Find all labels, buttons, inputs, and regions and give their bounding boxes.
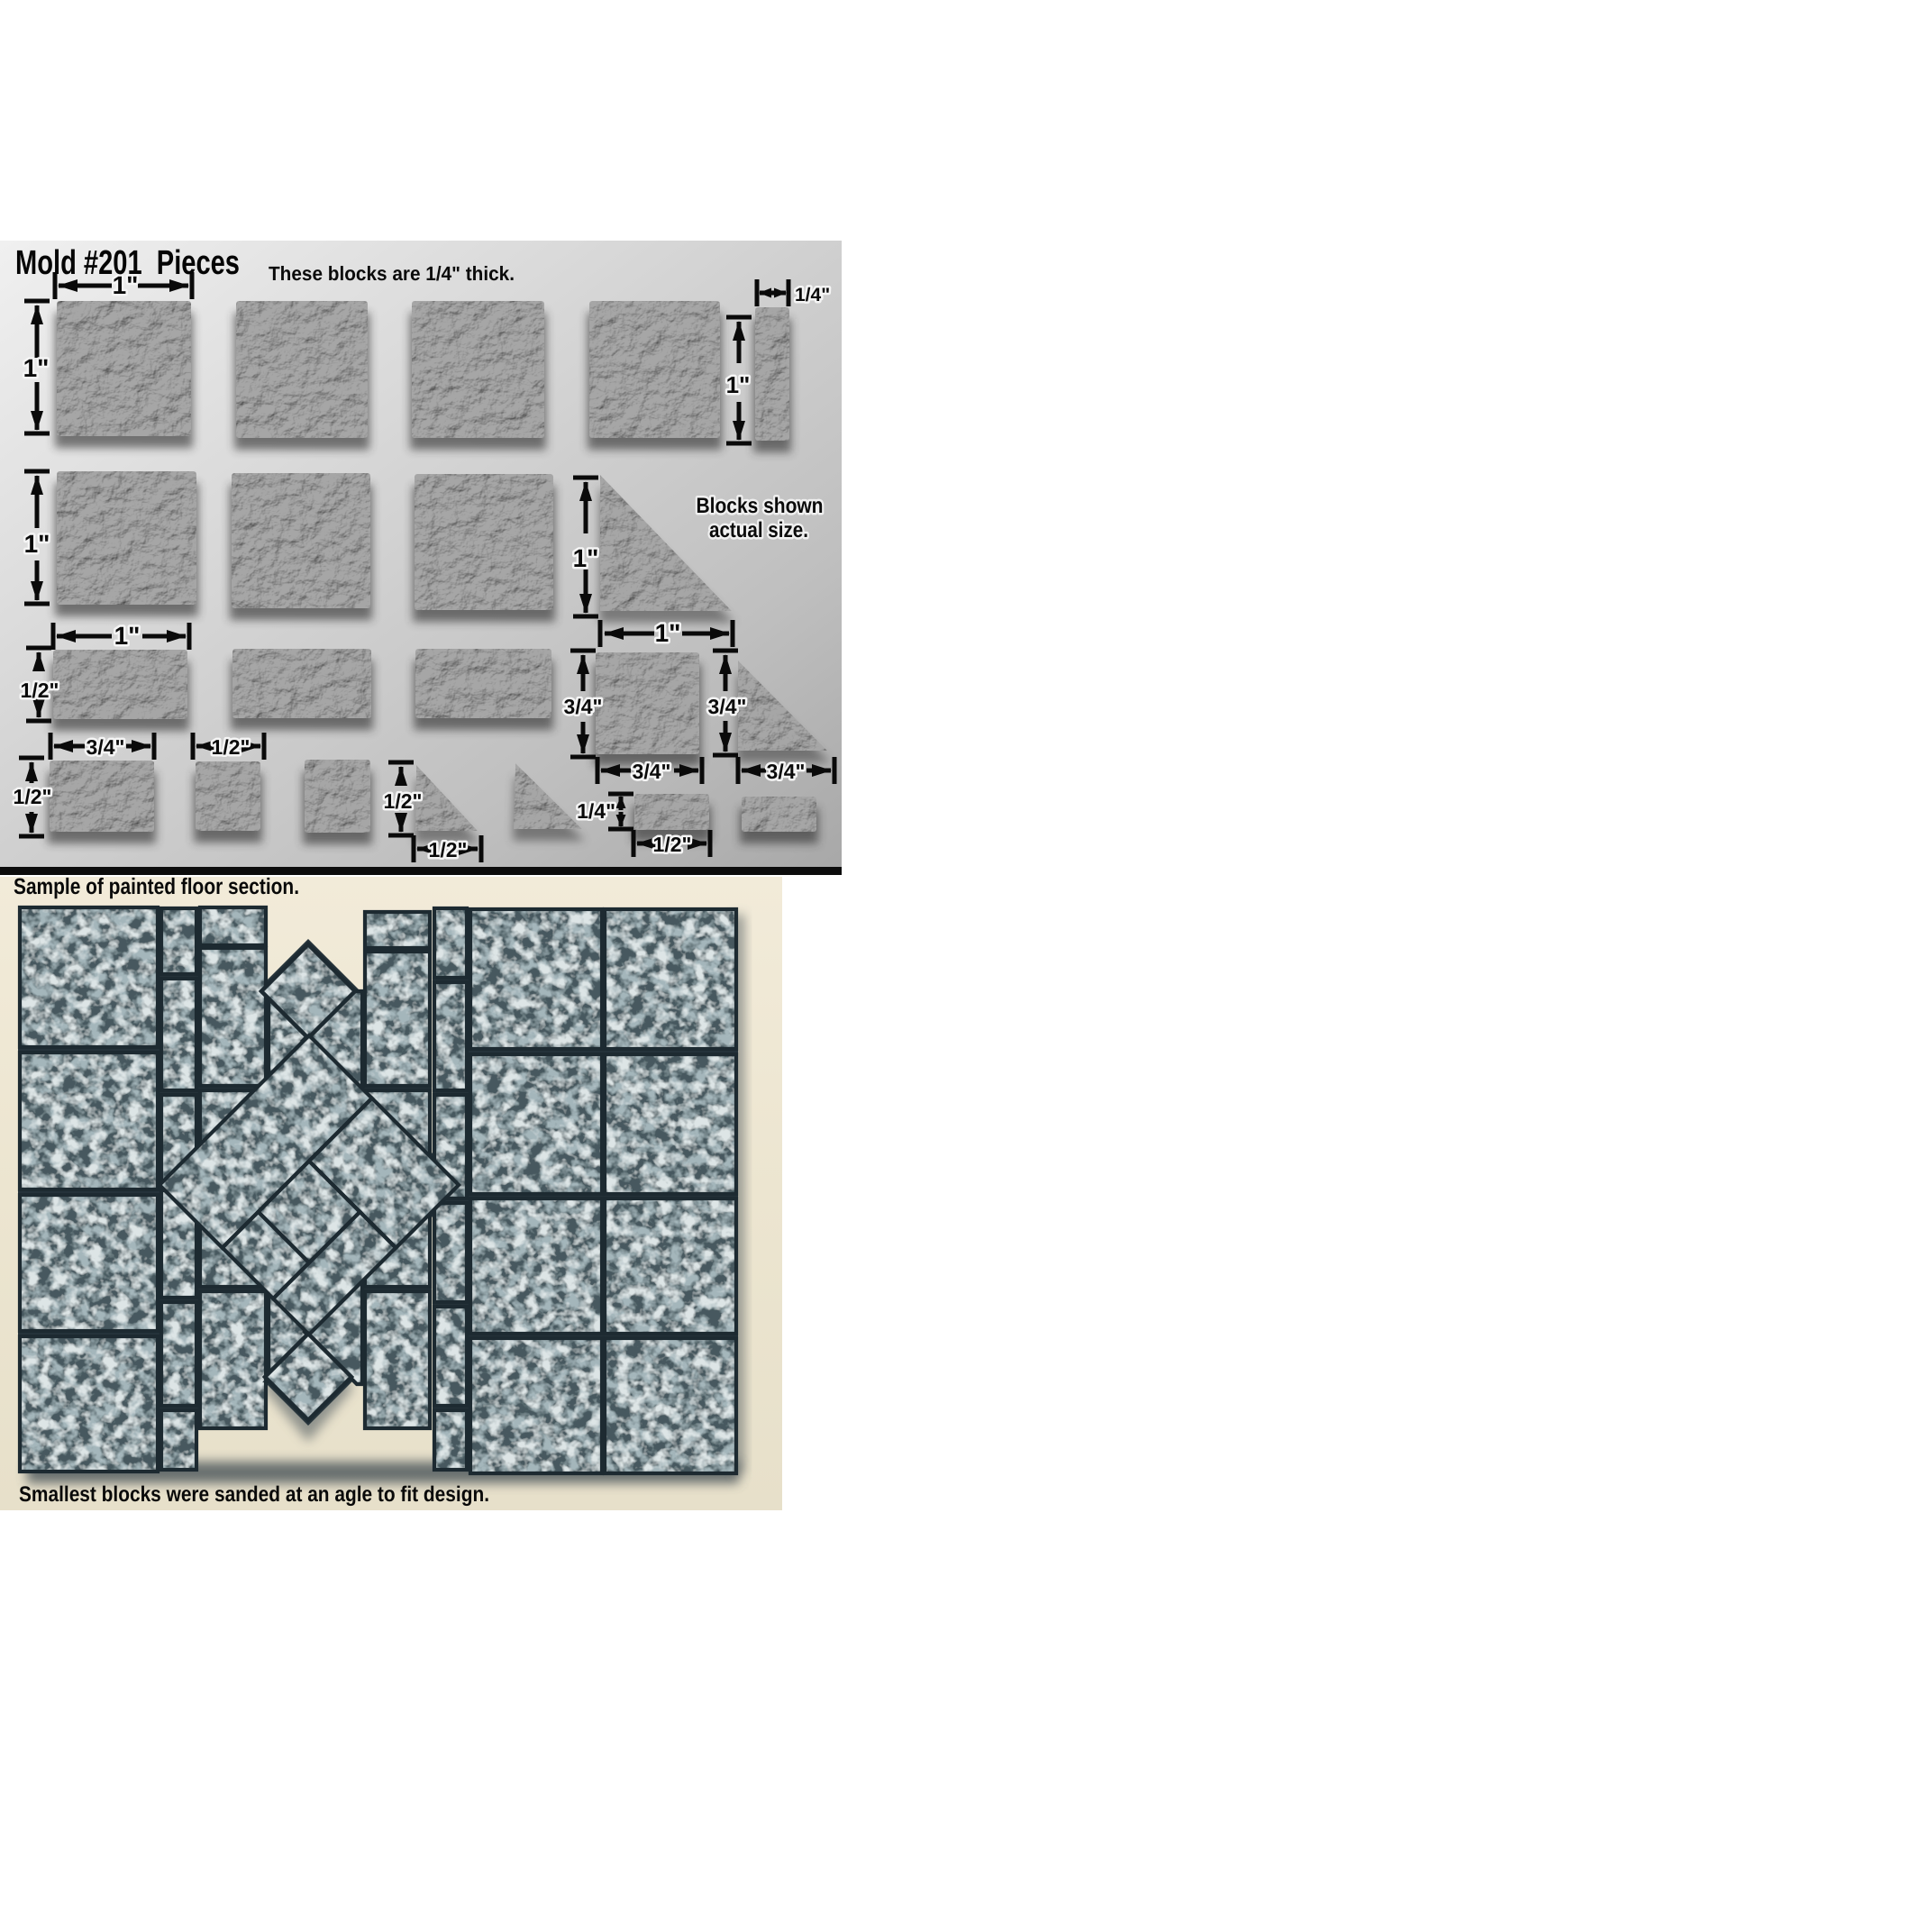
svg-text:3/4": 3/4" <box>564 695 603 718</box>
svg-text:3/4": 3/4" <box>767 760 806 783</box>
svg-text:1": 1" <box>24 530 50 558</box>
svg-text:Blocks shown: Blocks shown <box>697 494 824 518</box>
svg-text:1/4": 1/4" <box>577 799 615 823</box>
svg-text:1/2": 1/2" <box>653 833 692 856</box>
svg-text:1": 1" <box>573 544 599 572</box>
svg-text:1/2": 1/2" <box>21 679 59 702</box>
svg-text:3/4": 3/4" <box>87 735 125 759</box>
svg-text:1/2": 1/2" <box>212 735 251 759</box>
svg-text:1/2": 1/2" <box>429 838 468 861</box>
svg-text:These blocks are 1/4" thick.: These blocks are 1/4" thick. <box>269 262 515 285</box>
svg-text:Mold #201 Pieces: Mold #201 Pieces <box>15 244 240 282</box>
svg-text:3/4": 3/4" <box>708 695 747 718</box>
svg-text:actual size.: actual size. <box>709 518 808 542</box>
svg-text:1/2": 1/2" <box>384 789 423 813</box>
svg-text:3/4": 3/4" <box>633 760 671 783</box>
svg-text:1/2": 1/2" <box>14 785 52 808</box>
svg-text:Smallest blocks were sanded at: Smallest blocks were sanded at an agle t… <box>19 1482 489 1507</box>
svg-text:Sample of painted floor sectio: Sample of painted floor section. <box>14 874 299 899</box>
svg-text:1": 1" <box>655 619 681 647</box>
svg-text:1": 1" <box>23 354 50 382</box>
svg-text:1/4": 1/4" <box>795 285 830 305</box>
svg-text:1": 1" <box>726 371 751 398</box>
svg-text:1": 1" <box>114 622 141 650</box>
